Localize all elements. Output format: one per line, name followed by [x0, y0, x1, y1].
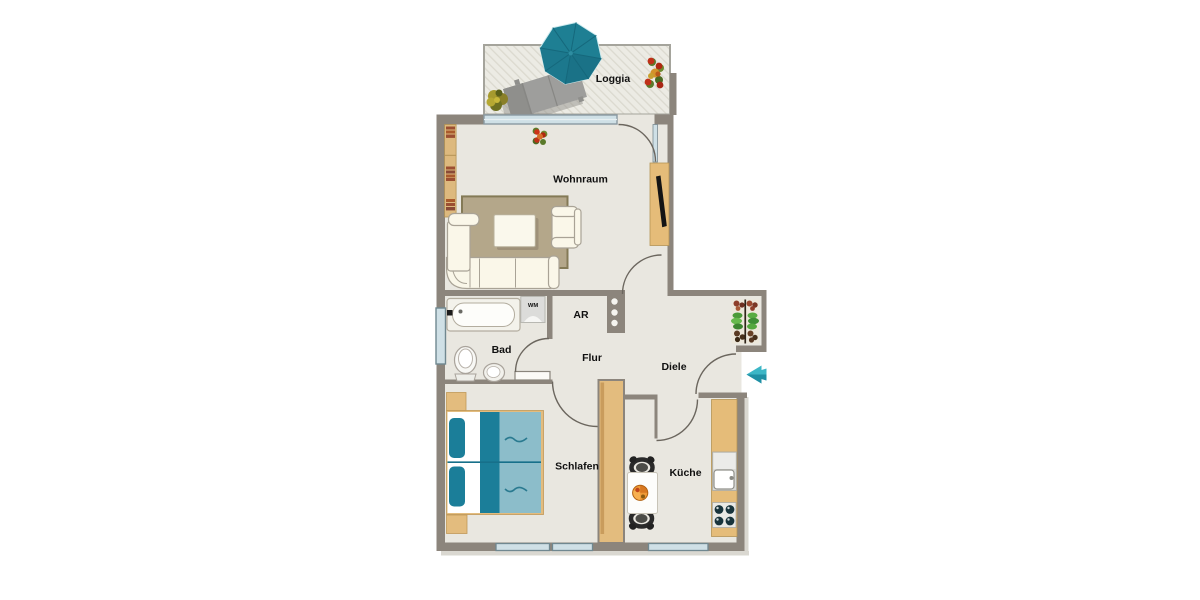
svg-text:Bad: Bad	[492, 344, 512, 356]
svg-text:Wohnraum: Wohnraum	[553, 174, 608, 186]
svg-text:Loggia: Loggia	[596, 73, 631, 85]
svg-text:Schlafen: Schlafen	[555, 461, 599, 473]
svg-text:Flur: Flur	[582, 352, 602, 364]
svg-text:Diele: Diele	[661, 361, 686, 373]
svg-text:WM: WM	[528, 303, 538, 309]
svg-text:AR: AR	[573, 309, 589, 321]
svg-text:Küche: Küche	[669, 467, 701, 479]
